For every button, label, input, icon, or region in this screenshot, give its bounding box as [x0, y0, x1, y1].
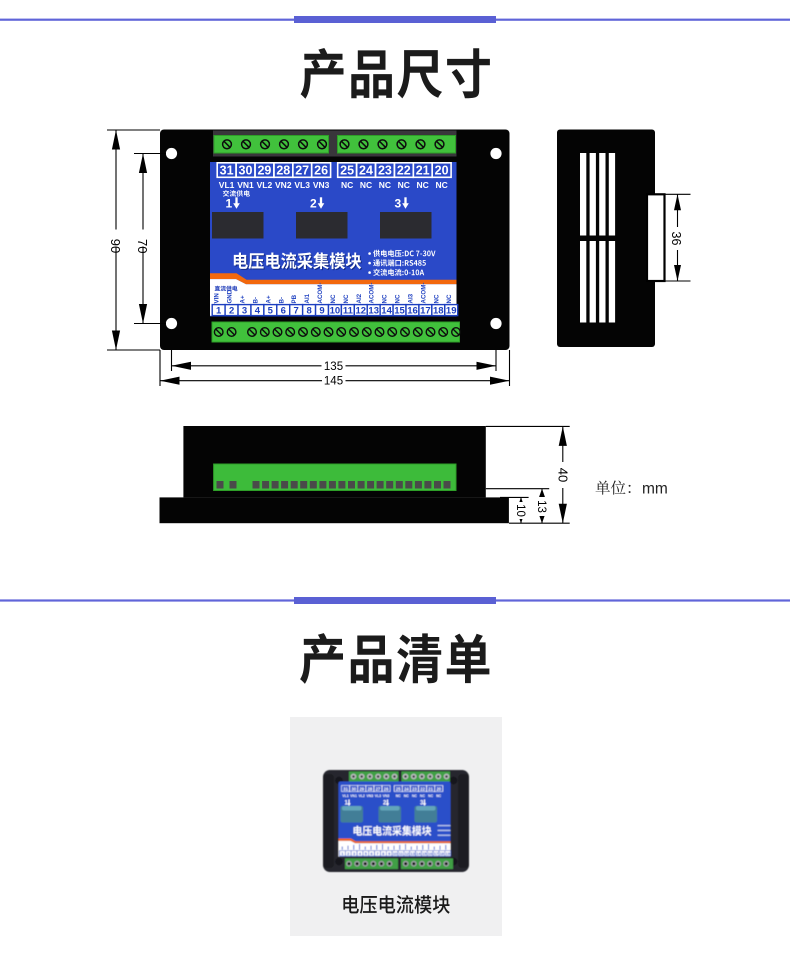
svg-text:30: 30: [239, 164, 253, 178]
svg-text:10: 10: [393, 851, 398, 856]
svg-text:NC: NC: [446, 294, 453, 303]
svg-text:2: 2: [310, 197, 317, 211]
svg-text:23: 23: [412, 786, 417, 791]
svg-text:14: 14: [416, 851, 421, 856]
svg-text:4: 4: [255, 306, 261, 317]
svg-text:135: 135: [324, 361, 343, 373]
svg-text:24: 24: [404, 786, 409, 791]
svg-text:12: 12: [405, 851, 410, 856]
svg-text:ACOM-: ACOM-: [317, 283, 324, 304]
svg-text:VN1: VN1: [350, 794, 357, 798]
svg-text:30: 30: [351, 786, 356, 791]
svg-text:18: 18: [440, 851, 445, 856]
svg-text:13: 13: [368, 306, 379, 317]
svg-text:VL1: VL1: [219, 180, 235, 190]
svg-text:ACOM-: ACOM-: [420, 283, 427, 304]
svg-text:ACOM-: ACOM-: [369, 283, 376, 304]
svg-text:18: 18: [433, 306, 444, 317]
svg-text:19: 19: [445, 851, 450, 856]
svg-text:20: 20: [436, 786, 441, 791]
svg-text:31: 31: [220, 164, 234, 178]
svg-text:21: 21: [416, 164, 430, 178]
svg-text:145: 145: [324, 376, 343, 388]
svg-text:NC: NC: [379, 180, 391, 190]
svg-text:22: 22: [420, 786, 425, 791]
svg-text:8: 8: [306, 306, 311, 317]
svg-text:5: 5: [268, 306, 274, 317]
svg-text:27: 27: [295, 164, 309, 178]
svg-text:3: 3: [242, 306, 247, 317]
svg-text:VL2: VL2: [359, 794, 365, 798]
svg-text:VN2: VN2: [275, 180, 292, 190]
svg-text:15: 15: [394, 306, 405, 317]
svg-text:20: 20: [435, 164, 449, 178]
svg-text:15: 15: [422, 851, 427, 856]
svg-text:16: 16: [428, 851, 433, 856]
svg-text:NC: NC: [360, 180, 372, 190]
svg-text:13: 13: [410, 851, 415, 856]
svg-text:25: 25: [340, 164, 354, 178]
svg-text:NC: NC: [417, 180, 429, 190]
svg-text:VIN: VIN: [214, 293, 221, 304]
svg-text:7: 7: [294, 306, 299, 317]
svg-text:31: 31: [343, 786, 348, 791]
svg-text:B-: B-: [252, 297, 259, 304]
svg-text:10: 10: [514, 504, 526, 517]
svg-text:VN3: VN3: [383, 794, 390, 798]
svg-text:AI3: AI3: [408, 293, 415, 303]
svg-text:23: 23: [378, 164, 392, 178]
svg-text:26: 26: [384, 786, 389, 791]
svg-text:NC: NC: [341, 180, 353, 190]
svg-text:PB: PB: [291, 294, 298, 303]
svg-text:12: 12: [356, 306, 367, 317]
svg-text:1: 1: [226, 197, 233, 211]
svg-text:NC: NC: [412, 794, 417, 798]
svg-text:3: 3: [395, 197, 402, 211]
svg-text:26: 26: [314, 164, 328, 178]
svg-text:16: 16: [407, 306, 418, 317]
svg-text:VN3: VN3: [366, 794, 373, 798]
svg-text:NC: NC: [396, 794, 401, 798]
svg-text:VL2: VL2: [257, 180, 273, 190]
svg-text:VL1: VL1: [342, 794, 348, 798]
svg-text:NC: NC: [433, 294, 440, 303]
svg-text:2: 2: [229, 306, 234, 317]
svg-text:AI1: AI1: [304, 293, 311, 303]
svg-text:25: 25: [396, 786, 401, 791]
svg-text:A+: A+: [240, 295, 247, 303]
svg-text:NC: NC: [330, 294, 337, 303]
svg-text:GND: GND: [227, 289, 234, 303]
svg-text:13: 13: [535, 500, 547, 513]
svg-text:AI2: AI2: [356, 293, 363, 303]
svg-text:VL3: VL3: [375, 794, 381, 798]
svg-text:90: 90: [108, 239, 123, 253]
svg-text:17: 17: [434, 851, 439, 856]
svg-text:40: 40: [556, 468, 571, 482]
svg-text:14: 14: [381, 306, 392, 317]
svg-text:NC: NC: [398, 180, 410, 190]
svg-text:NC: NC: [420, 794, 425, 798]
svg-text:22: 22: [397, 164, 411, 178]
svg-text:NC: NC: [382, 294, 389, 303]
svg-text:29: 29: [359, 786, 364, 791]
svg-text:17: 17: [420, 306, 431, 317]
svg-text:21: 21: [428, 786, 433, 791]
svg-text:VL3: VL3: [294, 180, 310, 190]
svg-text:1: 1: [216, 306, 222, 317]
svg-text:NC: NC: [436, 794, 441, 798]
svg-text:NC: NC: [435, 180, 447, 190]
svg-text:VN1: VN1: [237, 180, 254, 190]
svg-text:B-: B-: [278, 297, 285, 304]
svg-text:28: 28: [276, 164, 290, 178]
svg-text:mm: mm: [642, 481, 668, 498]
svg-text:19: 19: [446, 306, 457, 317]
svg-text:27: 27: [376, 786, 381, 791]
svg-text:11: 11: [343, 306, 354, 317]
svg-text:70: 70: [135, 239, 150, 253]
svg-text:6: 6: [281, 306, 286, 317]
svg-text:VN3: VN3: [313, 180, 330, 190]
svg-text:NC: NC: [428, 794, 433, 798]
svg-text:NC: NC: [404, 794, 409, 798]
svg-text:10: 10: [330, 306, 341, 317]
svg-text:29: 29: [257, 164, 271, 178]
svg-text:28: 28: [368, 786, 373, 791]
svg-text:9: 9: [319, 306, 324, 317]
svg-text:A+: A+: [265, 295, 272, 303]
svg-text:NC: NC: [343, 294, 350, 303]
svg-text:24: 24: [359, 164, 373, 178]
svg-text:NC: NC: [395, 294, 402, 303]
svg-text:36: 36: [669, 232, 683, 246]
